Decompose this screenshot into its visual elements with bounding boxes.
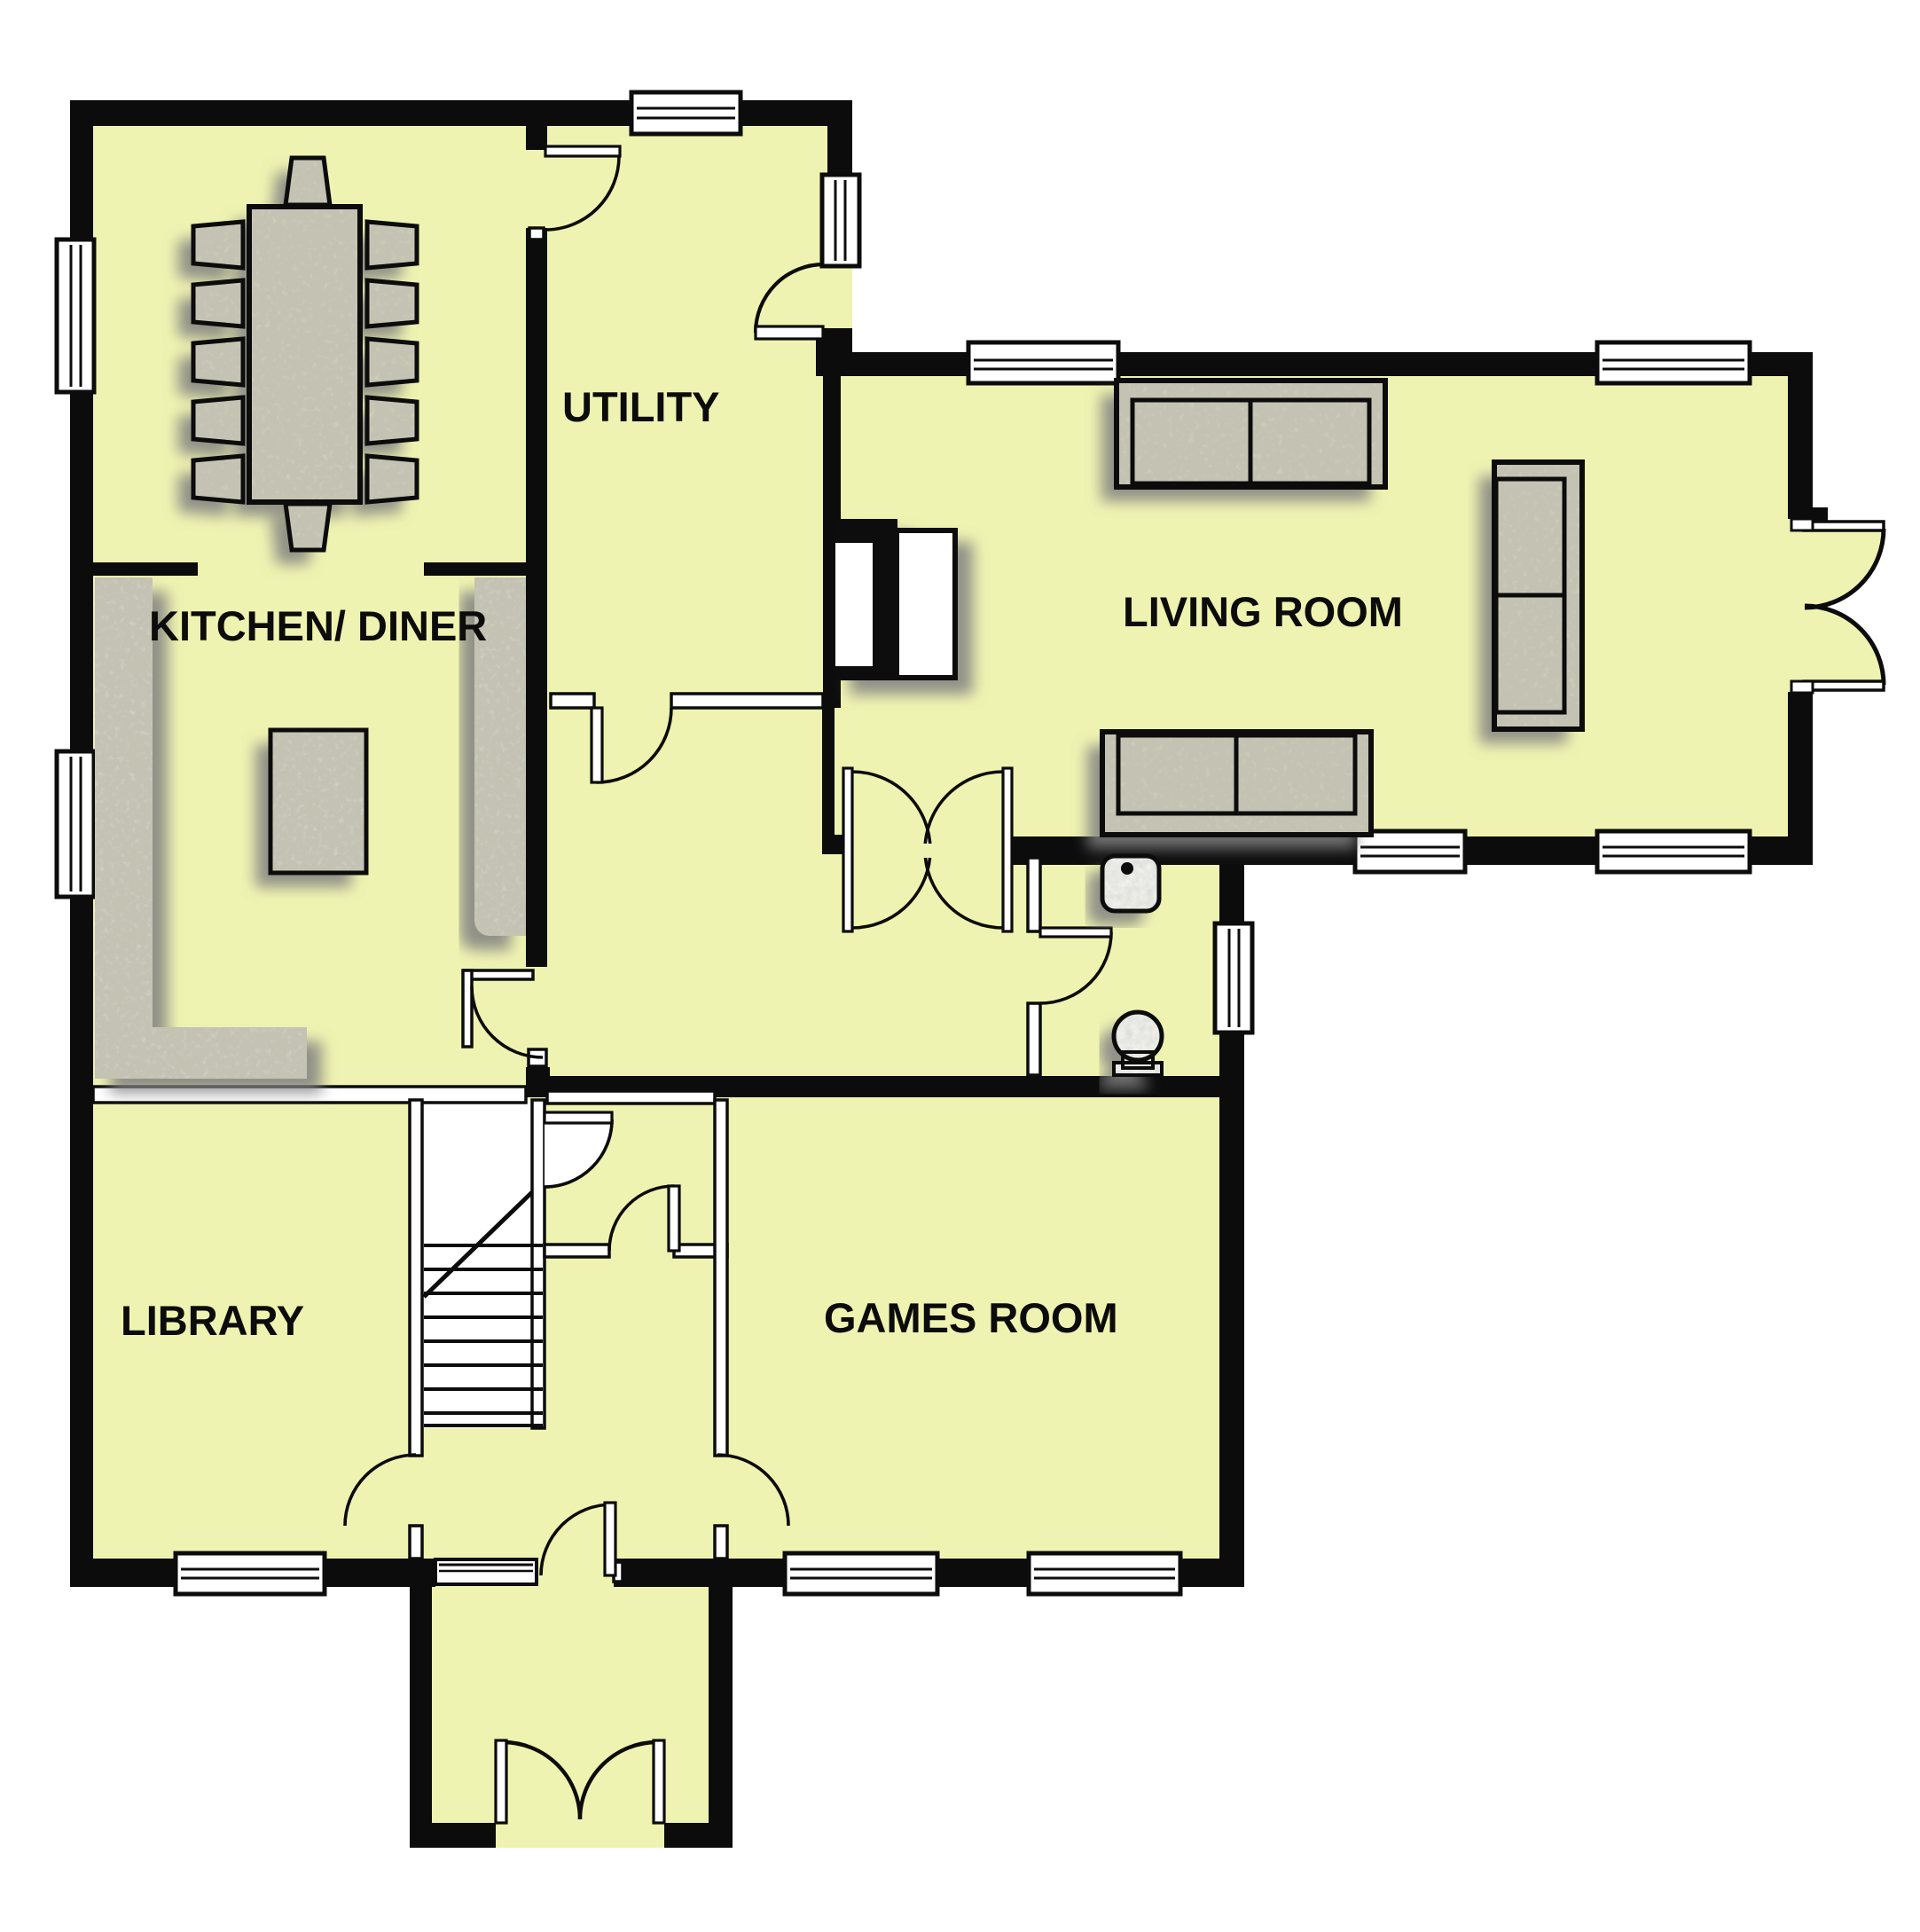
svg-text:KITCHEN/ DINER: KITCHEN/ DINER [149, 602, 487, 649]
svg-text:GAMES ROOM: GAMES ROOM [824, 1294, 1118, 1341]
svg-text:UTILITY: UTILITY [562, 383, 720, 430]
svg-text:LIVING ROOM: LIVING ROOM [1123, 588, 1403, 635]
svg-text:LIBRARY: LIBRARY [121, 1297, 304, 1344]
